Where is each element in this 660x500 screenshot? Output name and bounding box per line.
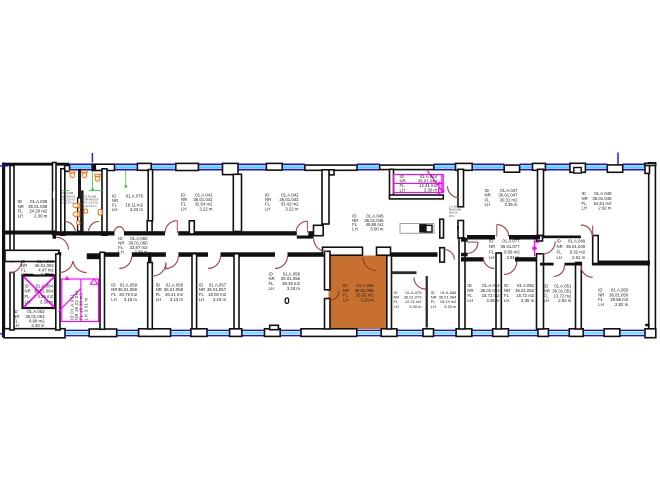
svg-text:LH: LH [582,206,588,211]
svg-text:2.91 m: 2.91 m [506,255,520,260]
svg-text:3.35 m: 3.35 m [504,202,518,207]
svg-text:LH: LH [431,304,436,309]
svg-text:LH: LH [18,213,24,218]
svg-text:3.00 m: 3.00 m [370,226,384,231]
svg-text:2.92 m: 2.92 m [598,206,612,211]
svg-text:3.22 m: 3.22 m [130,207,144,212]
svg-text:2.38 m: 2.38 m [134,249,148,254]
svg-text:36.01.064: 36.01.064 [34,289,54,294]
svg-text:2.91 m: 2.91 m [572,255,586,260]
svg-text:3.33 m: 3.33 m [361,298,375,303]
svg-text:3.22 m: 3.22 m [199,206,213,211]
svg-text:3.35 m: 3.35 m [486,298,500,303]
svg-text:2/0 L: 2/0 L [449,214,455,218]
svg-text:FL: FL [489,249,495,254]
svg-text:FL: FL [557,249,563,254]
svg-text:LH: LH [181,206,187,211]
svg-text:3.19 m: 3.19 m [124,297,138,302]
svg-text:FL: FL [25,294,31,299]
svg-text:LH: LH [118,249,124,254]
svg-text:36.01.049: 36.01.049 [566,244,586,249]
svg-text:LH: LH [467,298,473,303]
svg-text:ID: ID [25,283,29,288]
svg-text:LH: LH [489,255,495,260]
svg-text:01.A.049: 01.A.049 [568,238,586,243]
svg-text:3.30 m: 3.30 m [41,272,55,277]
svg-text:3.30 m: 3.30 m [40,300,54,305]
svg-text:LH: LH [557,255,563,260]
svg-text:LH: LH [265,206,271,211]
svg-text:LH: LH [112,207,118,212]
svg-text:2.92 m: 2.92 m [615,302,629,307]
svg-text:LH: LH [25,300,31,305]
svg-text:8.32 m2: 8.32 m2 [570,249,586,254]
svg-text:3.19 m: 3.19 m [213,297,227,302]
svg-text:LH 3.31 m: LH 3.31 m [83,297,88,320]
svg-text:ID: ID [489,238,493,243]
svg-text:LH: LH [343,298,349,303]
svg-text:2.30 m: 2.30 m [34,213,48,218]
svg-text:LH: LH [400,188,406,193]
svg-text:3.30 m: 3.30 m [424,188,438,193]
svg-text:3.22 m: 3.22 m [285,206,299,211]
svg-text:LH: LH [598,302,604,307]
svg-text:LH: LH [13,323,18,328]
svg-text:4.36 m2: 4.36 m2 [37,294,53,299]
svg-text:3.13 m: 3.13 m [170,297,184,302]
svg-text:NR: NR [557,244,563,249]
svg-text:LH: LH [156,297,162,302]
svg-text:3.30 m: 3.30 m [31,323,45,328]
svg-text:ID: ID [557,238,561,243]
svg-text:2.92 m: 2.92 m [558,298,572,303]
svg-text:LH: LH [352,226,358,231]
svg-text:LH: LH [199,297,205,302]
svg-text:LH: LH [394,304,399,309]
svg-text:LH: LH [504,298,510,303]
svg-text:LH 2.47 m: LH 2.47 m [62,201,75,205]
svg-text:01.A.076: 01.A.076 [126,194,144,199]
svg-text:LH: LH [544,298,550,303]
svg-text:01.A.064: 01.A.064 [36,283,54,288]
svg-text:8.56 m2: 8.56 m2 [504,249,520,254]
svg-text:36.01.077: 36.01.077 [500,244,520,249]
svg-text:LH 2.47 m: LH 2.47 m [85,204,98,208]
svg-text:LH: LH [269,286,275,291]
svg-text:LH: LH [485,202,491,207]
svg-text:LH: LH [21,272,27,277]
svg-text:3.30 m: 3.30 m [409,304,422,309]
svg-text:NR: NR [25,289,31,294]
svg-text:3.19 m: 3.19 m [287,286,301,291]
svg-text:NR: NR [489,244,495,249]
svg-text:01.A.077: 01.A.077 [502,238,520,243]
svg-text:3.35 m: 3.35 m [521,298,535,303]
svg-text:LH: LH [111,297,117,302]
svg-text:3.30 m: 3.30 m [444,304,457,309]
